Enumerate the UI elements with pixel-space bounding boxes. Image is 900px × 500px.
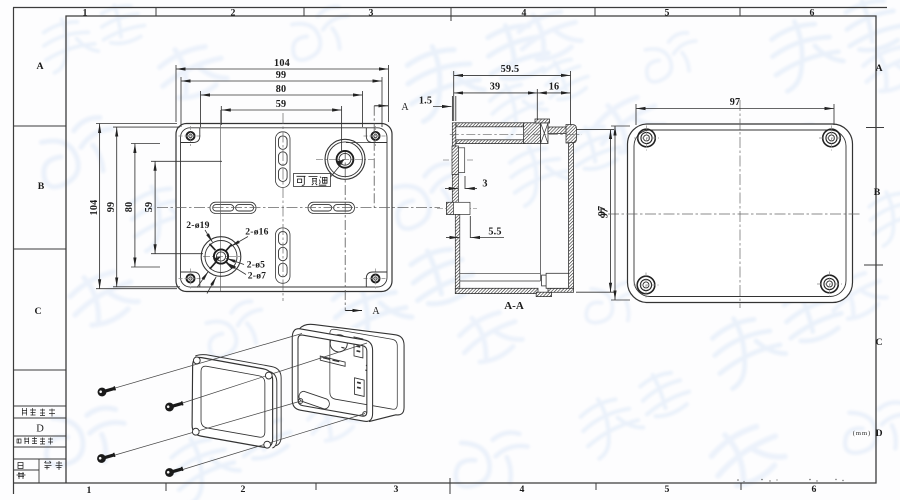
svg-text:(mm): (mm): [853, 430, 871, 437]
svg-text:A: A: [875, 63, 882, 74]
svg-text:59: 59: [276, 99, 287, 110]
svg-text:D: D: [875, 428, 882, 439]
svg-text:1.5: 1.5: [419, 96, 432, 107]
svg-text:5: 5: [665, 8, 670, 19]
svg-text:6: 6: [812, 484, 817, 495]
svg-text:C: C: [34, 306, 41, 317]
svg-text:4: 4: [522, 8, 527, 19]
svg-text:2-ø19: 2-ø19: [186, 220, 209, 231]
svg-text:59.5: 59.5: [501, 64, 520, 75]
svg-text:104: 104: [274, 58, 290, 69]
svg-text:80: 80: [276, 84, 287, 95]
svg-text:5.5: 5.5: [488, 227, 501, 238]
svg-text:1: 1: [83, 8, 88, 19]
svg-text:97: 97: [730, 97, 741, 108]
svg-text:99: 99: [106, 202, 117, 213]
svg-text:A: A: [36, 61, 43, 72]
svg-text:59: 59: [144, 202, 155, 213]
svg-text:2-ø5: 2-ø5: [247, 260, 265, 271]
svg-text:5: 5: [665, 484, 670, 495]
svg-text:99: 99: [276, 70, 287, 81]
svg-text:1: 1: [87, 485, 92, 496]
svg-text:16: 16: [549, 82, 560, 93]
svg-text:D: D: [36, 424, 44, 435]
svg-text:104: 104: [89, 200, 100, 216]
svg-text:80: 80: [124, 202, 135, 213]
svg-text:2: 2: [231, 8, 236, 19]
svg-text:2-ø16: 2-ø16: [245, 227, 268, 238]
svg-text:39: 39: [490, 82, 501, 93]
svg-text:2: 2: [241, 484, 246, 495]
svg-text:6: 6: [810, 8, 815, 19]
svg-text:A-A: A-A: [504, 300, 524, 312]
svg-text:3: 3: [394, 484, 399, 495]
svg-text:4: 4: [520, 484, 525, 495]
svg-text:3: 3: [369, 8, 374, 19]
svg-text:C: C: [875, 337, 882, 348]
svg-text:B: B: [38, 181, 45, 192]
svg-text:A: A: [372, 306, 380, 317]
svg-text:3: 3: [482, 179, 487, 190]
svg-text:97: 97: [600, 208, 611, 219]
svg-text:A: A: [401, 102, 409, 113]
svg-text:2-ø7: 2-ø7: [248, 271, 266, 282]
svg-text:B: B: [874, 187, 881, 198]
